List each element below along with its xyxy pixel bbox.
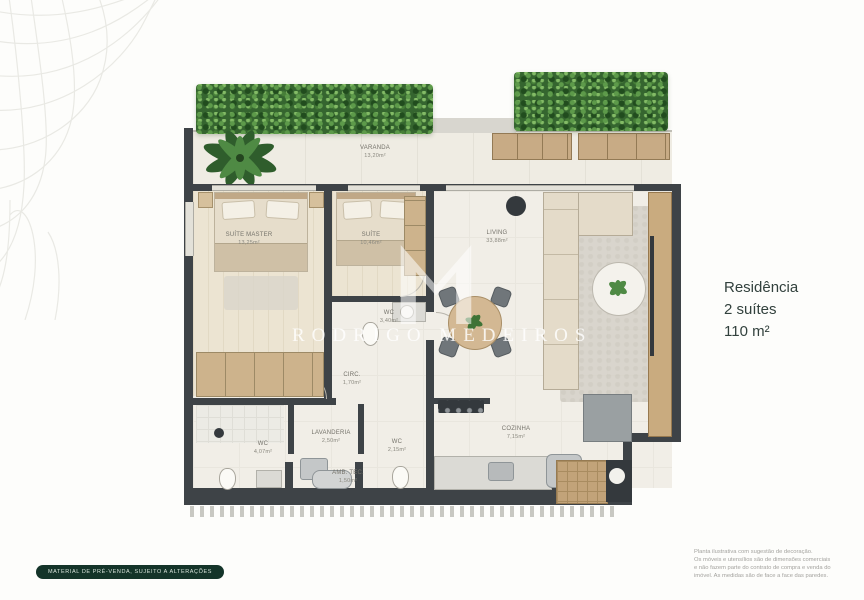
wall-right-upper [672,184,681,442]
varanda-bench [578,133,670,160]
toilet [392,466,409,489]
unit-info-line3: 110 m² [724,321,798,343]
wood-mat [556,460,608,504]
watermark-logo-icon [394,232,478,327]
window-living [446,185,634,191]
unit-info-line2: 2 suítes [724,299,798,321]
room-label-wc-master: WC4,07m² [254,441,272,455]
disclaimer-line: Os móveis e utensílios são de dimensões … [694,556,831,564]
room-label-living: LIVING33,88m² [486,230,508,244]
table-plant [606,276,630,300]
varanda-bench [492,133,572,160]
wall-suite-living-low [426,340,434,404]
dimension-ticks [190,506,614,517]
gray-cabinet [583,394,632,442]
planter-strip [432,118,516,133]
unit-info-line1: Residência [724,277,798,299]
wardrobe-master [196,352,324,397]
room-label-suite-master: SUÍTE MASTER13,25m² [226,232,273,246]
tv [650,236,654,356]
presale-badge: MATERIAL DE PRÉ-VENDA, SUJEITO A ALTERAÇ… [36,565,224,579]
shower-drain [214,428,224,438]
window-suite-master [212,185,316,191]
wall-bath-left [324,296,332,404]
rug-master [224,276,298,310]
sofa [543,192,579,390]
wc-sink [256,470,282,488]
room-label-lavanderia: LAVANDERIA2,50m² [311,430,350,444]
window-left-wall [185,202,194,256]
disclaimer-line: e não fazem parte do contrato de compra … [694,564,831,572]
cooktop [438,400,484,413]
wall-stub-1 [285,462,293,490]
palm-plant [198,124,282,192]
room-label-varanda: VARANDA13,20m² [360,145,390,159]
room-label-cozinha: COZINHA7,15m² [502,426,530,440]
corner-basin [609,468,625,484]
wall-kitchen-left [426,398,434,490]
room-label-wc-social: WC2,15m² [388,439,406,453]
kitchen-sink [488,462,514,481]
wall-corridor [193,398,336,405]
hedge-right [514,72,668,131]
wall-bottom-rooms-1 [288,404,294,454]
disclaimer-line: Planta ilustrativa com sugestão de decor… [694,548,831,556]
wall-bottom-rooms-2 [358,404,364,454]
nightstand [198,192,213,208]
disclaimer-text: Planta ilustrativa com sugestão de decor… [694,548,831,580]
watermark-text: RODRIGO MEDEIROS [292,325,592,347]
ceiling-lamp [506,196,526,216]
toilet [219,468,236,490]
room-label-circ: CIRC.1,70m² [343,372,361,386]
window-suite [348,185,420,191]
disclaimer-line: imóvel. As medidas são de face a face da… [694,572,831,580]
shower-area [196,405,284,443]
wall-master-suite [324,184,332,304]
room-label-suite: SUÍTE10,46m² [360,232,382,246]
nightstand [309,192,324,208]
unit-info-panel: Residência 2 suítes 110 m² [724,277,798,343]
room-label-amb-tec: AMB. TEC.1,50m² [332,470,364,484]
